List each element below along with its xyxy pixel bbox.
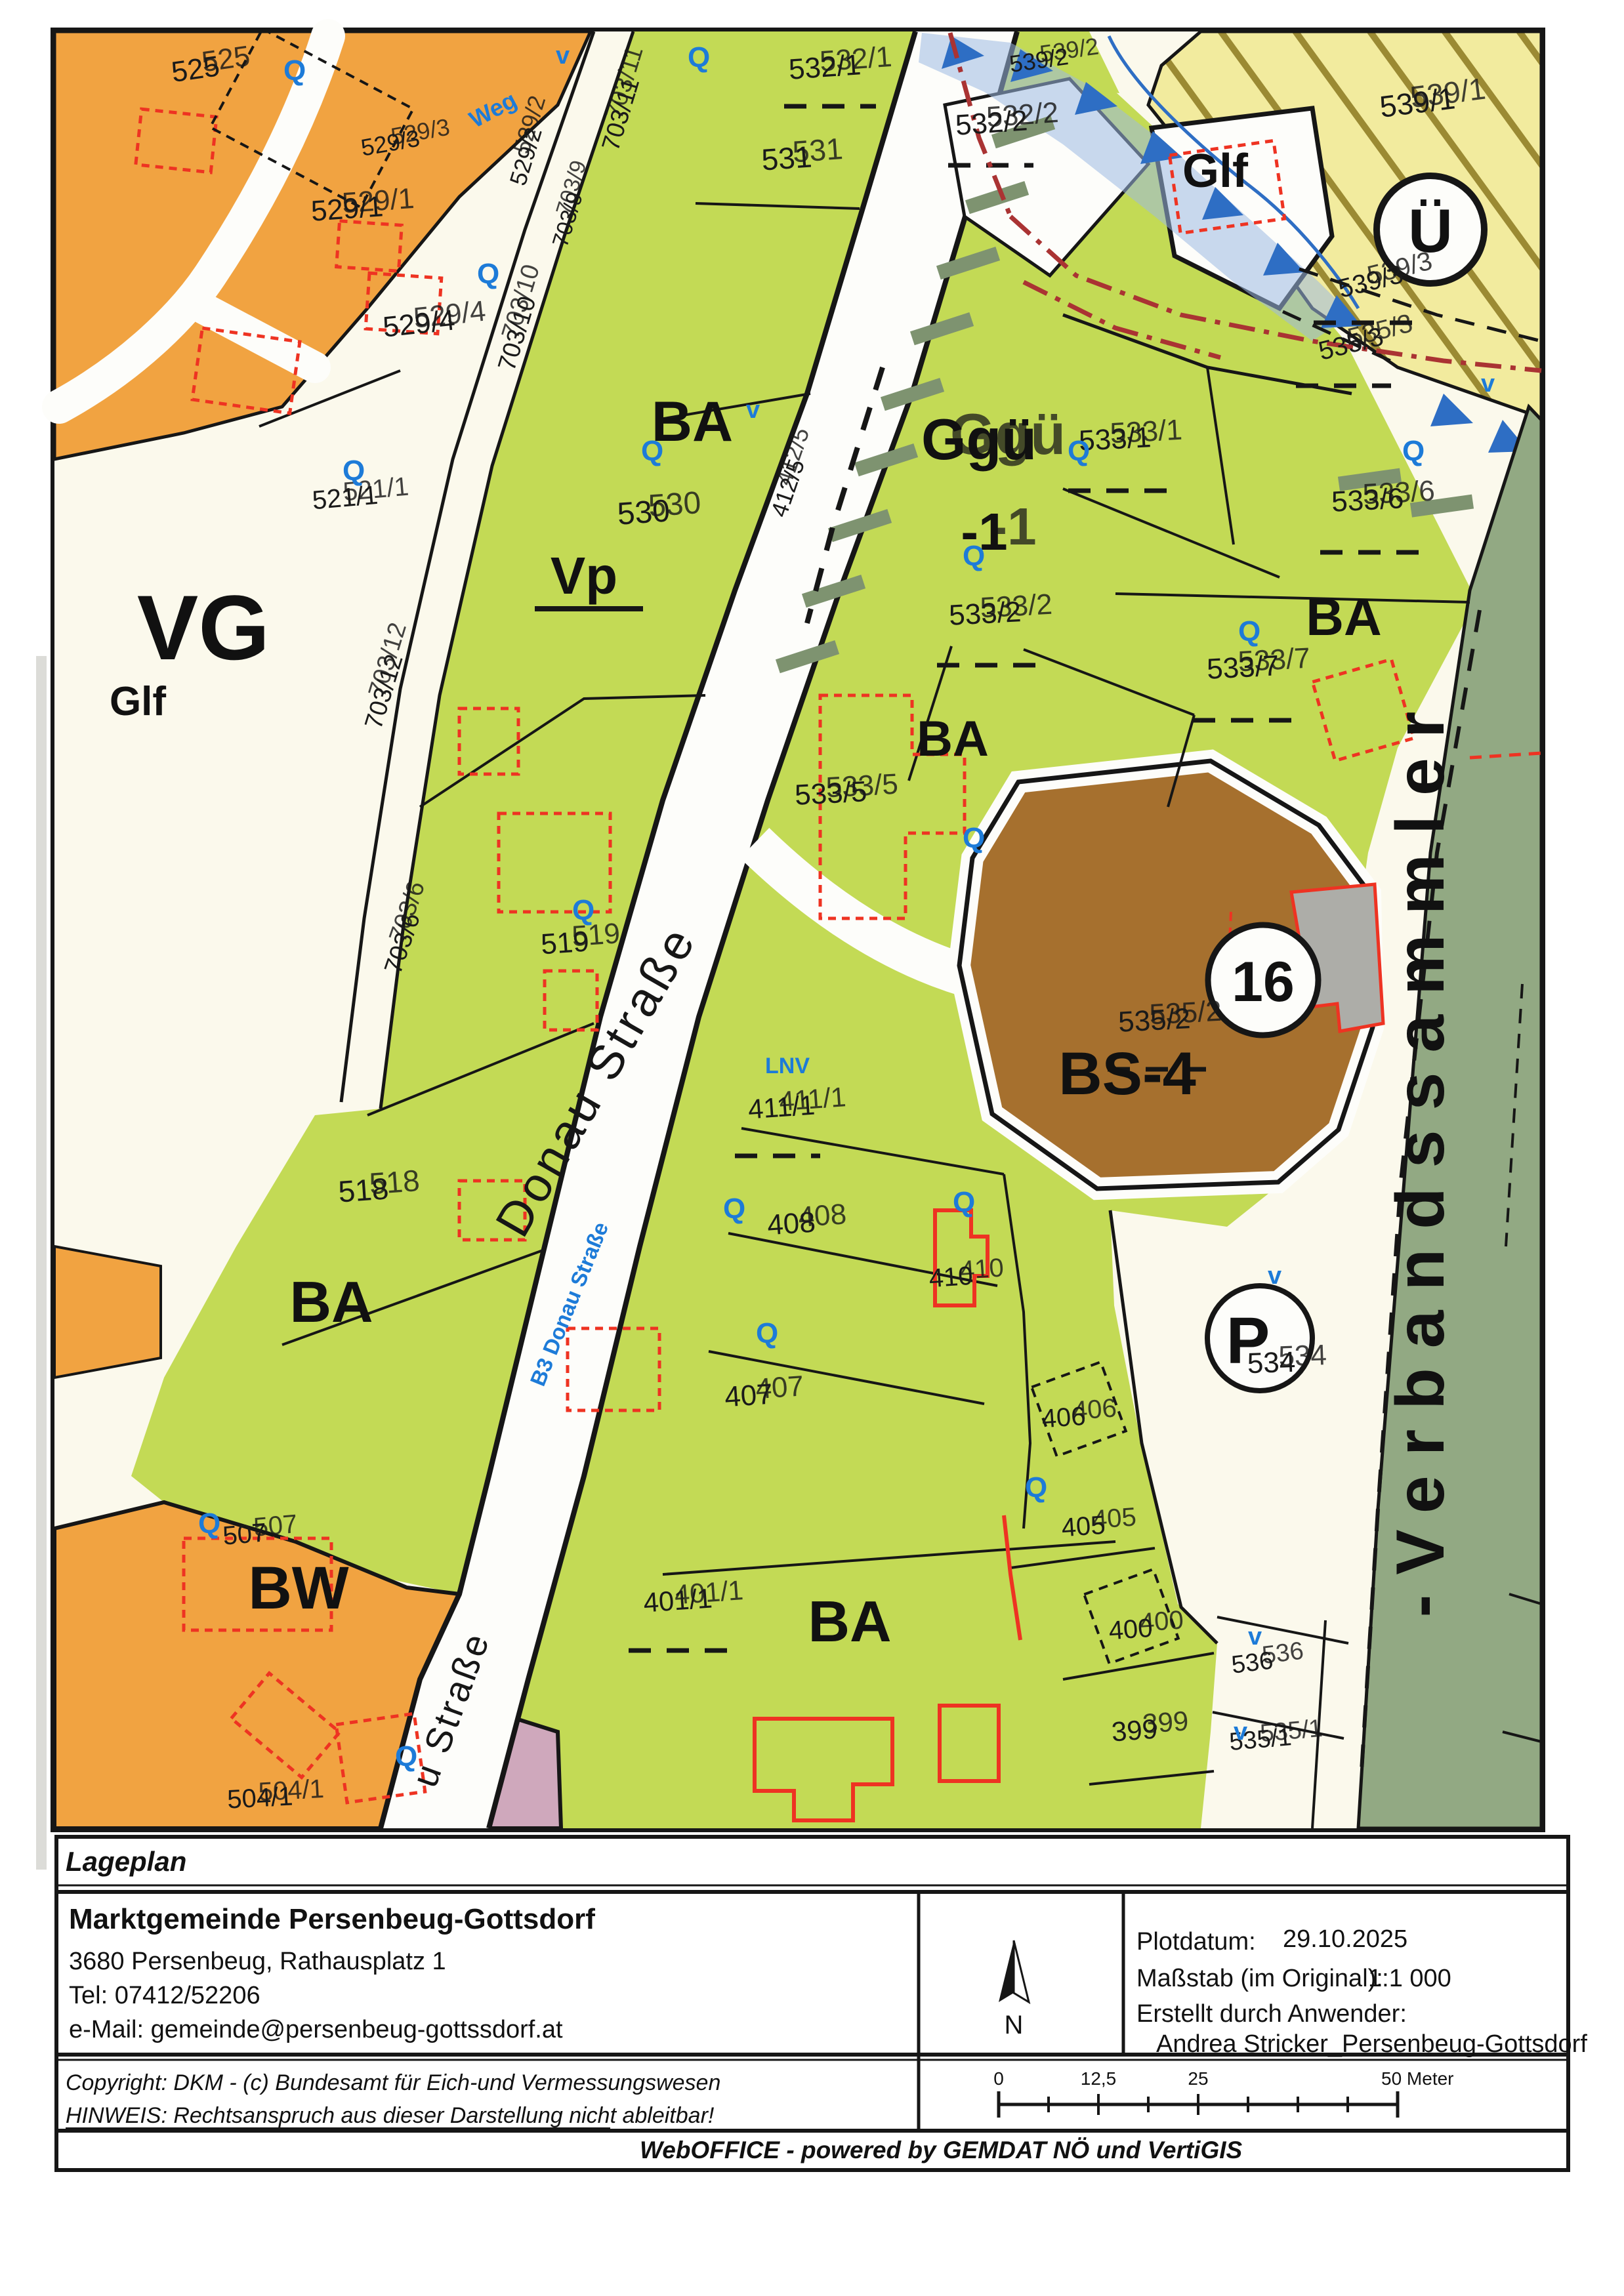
q-symbol: Q bbox=[198, 1507, 220, 1540]
scale-tick-50: 50 Meter bbox=[1381, 2068, 1454, 2089]
parcel-label: 532/2 bbox=[954, 104, 1028, 142]
q-symbol: Q bbox=[1402, 435, 1425, 467]
q-symbol: Q bbox=[1238, 615, 1260, 647]
q-symbol: Q bbox=[688, 41, 710, 73]
erstellt-value: Andrea Stricker_Persenbeug-Gottsdorf bbox=[1156, 2030, 1587, 2058]
parcel-label: 408 bbox=[766, 1206, 817, 1242]
zone-label-ba-4: BA bbox=[917, 711, 989, 767]
weboffice-line: WebOFFICE - powered by GEMDAT NÖ und Ver… bbox=[640, 2137, 1243, 2163]
zone-label-bs4: BS-4 bbox=[1058, 1040, 1196, 1107]
zone-label-vp: Vp bbox=[551, 546, 617, 605]
zone-label-glf-2: Glf bbox=[110, 679, 166, 724]
v-symbol: v bbox=[556, 42, 570, 70]
q-symbol: Q bbox=[1025, 1471, 1047, 1504]
parcel-label: 533/6 bbox=[1331, 482, 1405, 518]
scale-tick-12-5: 12,5 bbox=[1081, 2068, 1117, 2089]
parcel-label: 529/1 bbox=[310, 190, 384, 228]
q-symbol: Q bbox=[343, 455, 365, 487]
scan-shadow bbox=[36, 656, 47, 1870]
v-symbol: v bbox=[1234, 1718, 1247, 1746]
scale-tick-25: 25 bbox=[1188, 2068, 1208, 2089]
scanned-lageplan-page: BA BA BA BA BA Vp Glf Glf VG Ggü -1 BS-4… bbox=[0, 0, 1624, 2296]
v-symbol: v bbox=[1268, 1262, 1281, 1290]
zone-label-ggue: Ggü bbox=[921, 407, 1037, 472]
zone-label-ba-3: BA bbox=[1306, 588, 1382, 646]
north-label: N bbox=[1005, 2011, 1024, 2040]
erstellt-label: Erstellt durch Anwender: bbox=[1136, 2000, 1407, 2028]
parcel-label: 518 bbox=[337, 1171, 390, 1208]
zone-label-ba-1: BA bbox=[652, 390, 733, 453]
parcel-label: 533/5 bbox=[794, 775, 868, 811]
q-symbol: Q bbox=[953, 1186, 975, 1218]
q-symbol: Q bbox=[963, 540, 985, 572]
title-block: Lageplan Marktgemeinde Persenbeug-Gottsd… bbox=[56, 1837, 1587, 2170]
zone-label-glf-1: Glf bbox=[1182, 145, 1249, 197]
parcel-label: 504/1 bbox=[226, 1782, 293, 1814]
parcel-label: 400 bbox=[1108, 1614, 1154, 1646]
v-symbol: v bbox=[1481, 370, 1495, 398]
municipality-address: 3680 Persenbeug, Rathausplatz 1 bbox=[69, 1948, 446, 1975]
scale-tick-0: 0 bbox=[993, 2068, 1004, 2089]
parcel-label: 410 bbox=[928, 1261, 974, 1294]
parcel-label: 535/2 bbox=[1117, 1002, 1192, 1038]
q-symbol: Q bbox=[572, 894, 594, 926]
parcel-label: 406 bbox=[1041, 1402, 1087, 1434]
lageplan-document: BA BA BA BA BA Vp Glf Glf VG Ggü -1 BS-4… bbox=[0, 0, 1624, 2296]
parcel-label: 507 bbox=[222, 1518, 268, 1551]
q-symbol: Q bbox=[477, 258, 499, 290]
massstab-label: Maßstab (im Original): bbox=[1136, 1965, 1383, 1992]
municipality-name: Marktgemeinde Persenbeug-Gottsdorf bbox=[69, 1903, 595, 1935]
q-symbol: Q bbox=[1068, 435, 1090, 467]
parcel-label: 533/7 bbox=[1206, 649, 1280, 686]
parcel-label: 532/1 bbox=[787, 49, 862, 86]
map-canvas: BA BA BA BA BA Vp Glf Glf VG Ggü -1 BS-4… bbox=[36, 29, 1543, 1870]
zone-label-ba-2: BA bbox=[289, 1269, 373, 1334]
q-symbol: Q bbox=[641, 435, 663, 467]
zone-label-bw: BW bbox=[248, 1555, 348, 1622]
v-symbol: v bbox=[1248, 1623, 1262, 1650]
q-symbol: Q bbox=[756, 1317, 778, 1349]
parcel-label: 536 bbox=[1230, 1647, 1275, 1679]
q-symbol: Q bbox=[283, 54, 306, 87]
ue-circle-label: Ü bbox=[1408, 196, 1453, 265]
plotdatum-value: 29.10.2025 bbox=[1283, 1925, 1407, 1953]
parcel-label: 401/1 bbox=[642, 1582, 713, 1618]
parcel-label: 533/2 bbox=[948, 596, 1022, 632]
hinweis-line: HINWEIS: Rechtsanspruch aus dieser Darst… bbox=[66, 2103, 715, 2128]
street-label-collector: -Verbandssammler bbox=[1383, 692, 1459, 1618]
parcel-label: 531 bbox=[760, 139, 813, 176]
zone-label-ba-5: BA bbox=[808, 1589, 891, 1654]
parcel-label: 405 bbox=[1060, 1511, 1106, 1543]
parcel-label: 534 bbox=[1247, 1346, 1296, 1380]
parcel-label: 411/1 bbox=[747, 1090, 816, 1125]
v-symbol: v bbox=[746, 396, 760, 424]
q-symbol: Q bbox=[395, 1740, 417, 1773]
massstab-value: 1:1 000 bbox=[1368, 1965, 1451, 1992]
zone-label-lnv: LNV bbox=[765, 1054, 810, 1078]
plotdatum-label: Plotdatum: bbox=[1136, 1928, 1256, 1956]
zone-label-vg: VG bbox=[137, 576, 270, 679]
copyright-line: Copyright: DKM - (c) Bundesamt für Eich-… bbox=[66, 2070, 720, 2095]
parcel-label: 407 bbox=[724, 1378, 774, 1414]
municipality-email: e-Mail: gemeinde@persenbeug-gottssdorf.a… bbox=[69, 2016, 563, 2043]
municipality-phone: Tel: 07412/52206 bbox=[69, 1982, 260, 2009]
parcel-label: 525 bbox=[169, 50, 222, 89]
parcel-label: 530 bbox=[616, 493, 671, 531]
circle-16-label: 16 bbox=[1232, 951, 1295, 1014]
q-symbol: Q bbox=[963, 822, 985, 854]
zone-orange-wedge bbox=[54, 1246, 161, 1378]
q-symbol: Q bbox=[723, 1193, 745, 1225]
doc-title: Lageplan bbox=[66, 1846, 186, 1877]
parcel-label: 519 bbox=[540, 926, 591, 961]
parcel-label: 399 bbox=[1110, 1713, 1158, 1748]
